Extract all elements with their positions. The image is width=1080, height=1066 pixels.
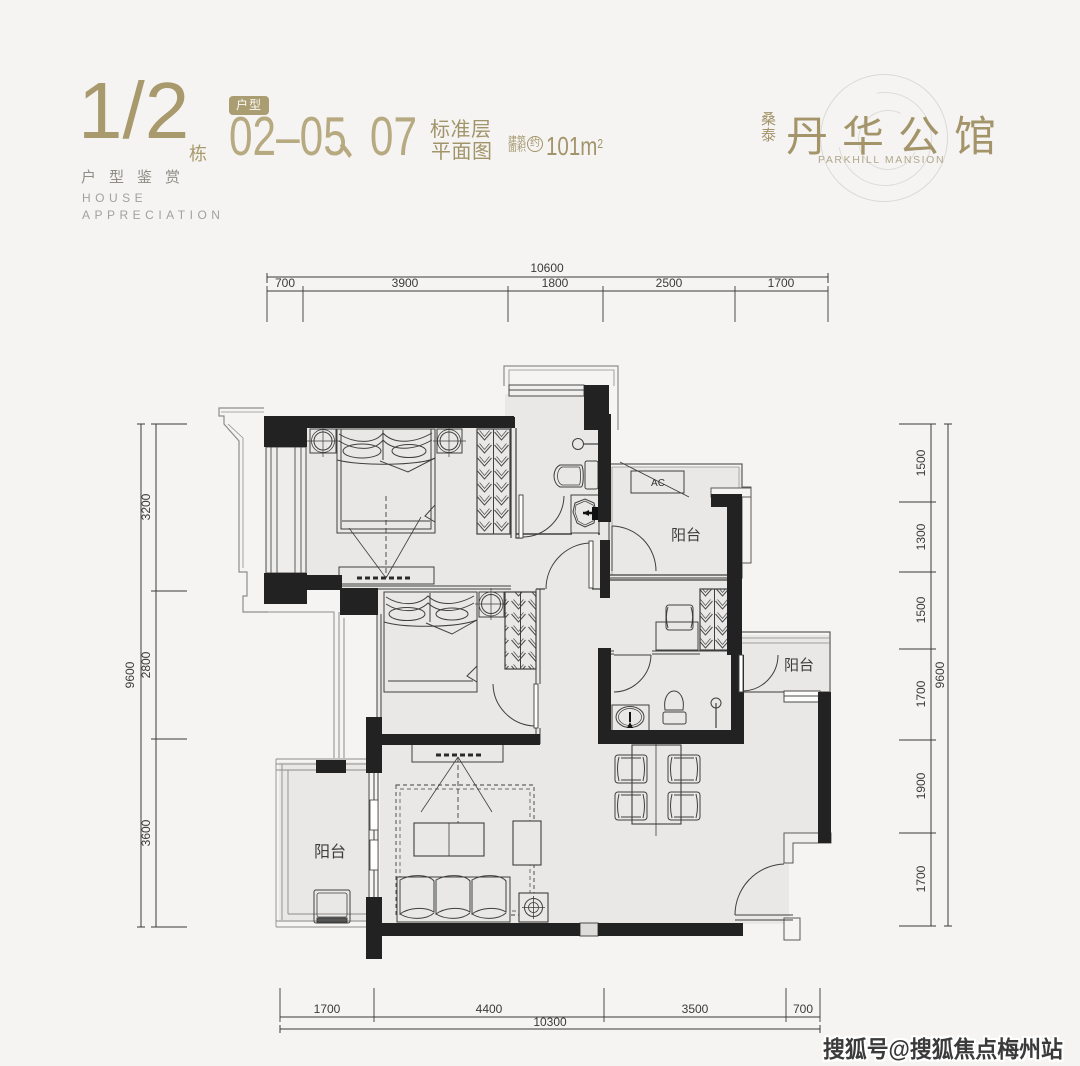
svg-text:阳台: 阳台 — [671, 527, 701, 544]
svg-text:1700: 1700 — [914, 680, 928, 707]
svg-text:3200: 3200 — [139, 493, 153, 520]
svg-text:AC: AC — [651, 478, 665, 489]
svg-text:1500: 1500 — [914, 449, 928, 476]
svg-text:1500: 1500 — [914, 596, 928, 623]
svg-text:9600: 9600 — [123, 661, 137, 688]
svg-text:700: 700 — [275, 276, 295, 290]
svg-text:700: 700 — [793, 1002, 813, 1016]
svg-text:阳台: 阳台 — [784, 657, 814, 674]
svg-text:1700: 1700 — [314, 1002, 341, 1016]
svg-text:2500: 2500 — [656, 276, 683, 290]
svg-text:3600: 3600 — [139, 819, 153, 846]
svg-text:4400: 4400 — [476, 1002, 503, 1016]
svg-text:1900: 1900 — [914, 772, 928, 799]
svg-text:1700: 1700 — [914, 865, 928, 892]
svg-text:10300: 10300 — [533, 1015, 567, 1029]
svg-text:3500: 3500 — [682, 1002, 709, 1016]
svg-text:1800: 1800 — [542, 276, 569, 290]
svg-text:3900: 3900 — [392, 276, 419, 290]
svg-text:1700: 1700 — [768, 276, 795, 290]
svg-text:2800: 2800 — [139, 651, 153, 678]
svg-text:1300: 1300 — [914, 523, 928, 550]
svg-text:10600: 10600 — [530, 261, 564, 275]
svg-text:9600: 9600 — [933, 661, 947, 688]
svg-text:阳台: 阳台 — [314, 843, 346, 861]
